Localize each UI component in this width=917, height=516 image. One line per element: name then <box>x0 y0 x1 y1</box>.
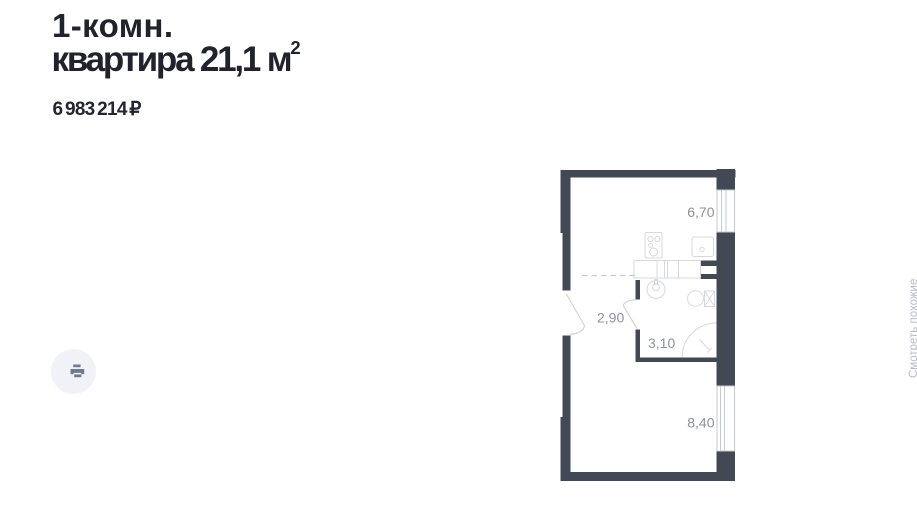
svg-text:2,90: 2,90 <box>597 310 624 326</box>
svg-text:6,70: 6,70 <box>687 204 714 220</box>
svg-text:3,10: 3,10 <box>648 335 675 351</box>
svg-text:8,40: 8,40 <box>687 415 714 431</box>
